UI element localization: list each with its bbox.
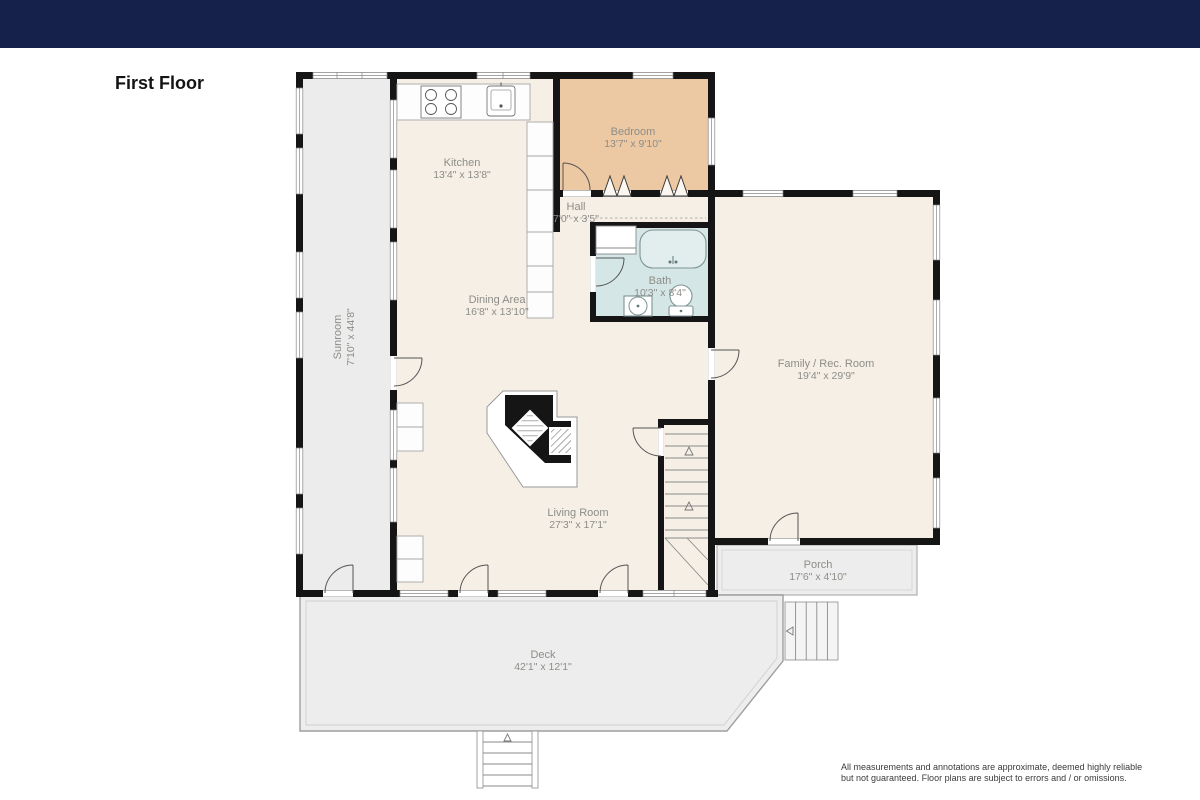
living-label: Living Room <box>547 507 608 519</box>
stove-icon <box>421 86 461 118</box>
porch-stairs <box>785 602 838 660</box>
deck-label: Deck <box>530 649 556 661</box>
svg-text:13'4" x 13'8": 13'4" x 13'8" <box>433 169 491 181</box>
bath-closet <box>596 226 636 254</box>
bedroom-label: Bedroom <box>611 126 656 138</box>
bath-label: Bath <box>649 275 672 287</box>
svg-text:7'0" x 3'5": 7'0" x 3'5" <box>553 213 599 225</box>
kitchen-label: Kitchen <box>444 157 481 169</box>
hall-label: Hall <box>567 201 586 213</box>
header-bar <box>0 0 1200 48</box>
porch-label: Porch <box>804 559 833 571</box>
svg-text:17'6" x 4'10": 17'6" x 4'10" <box>789 571 847 583</box>
svg-text:27'3" x 17'1": 27'3" x 17'1" <box>549 519 607 531</box>
svg-text:19'4" x 29'9": 19'4" x 29'9" <box>797 370 855 382</box>
svg-text:42'1" x 12'1": 42'1" x 12'1" <box>514 661 572 673</box>
disclaimer-line1: All measurements and annotations are app… <box>841 762 1142 772</box>
sunroom-label: Sunroom 7'10" x 44'8" <box>332 308 357 366</box>
kitchen-sink-icon <box>487 83 515 117</box>
floor-plan-canvas: First Floor <box>0 0 1200 800</box>
bathtub-icon <box>640 230 706 268</box>
bathroom-sink-icon <box>624 296 652 316</box>
family-label: Family / Rec. Room <box>778 358 875 370</box>
svg-text:13'7" x 9'10": 13'7" x 9'10" <box>604 138 662 150</box>
deck-stairs <box>477 731 538 788</box>
svg-text:16'8" x 13'10": 16'8" x 13'10" <box>465 306 529 318</box>
svg-text:Sunroom: Sunroom <box>332 315 344 360</box>
page-title: First Floor <box>115 73 204 93</box>
dining-label: Dining Area <box>469 294 527 306</box>
svg-text:7'10" x 44'8": 7'10" x 44'8" <box>345 308 357 366</box>
disclaimer-line2: but not guaranteed. Floor plans are subj… <box>841 773 1127 783</box>
svg-text:10'3" x 8'4": 10'3" x 8'4" <box>634 287 686 299</box>
disclaimer: All measurements and annotations are app… <box>841 762 1142 783</box>
